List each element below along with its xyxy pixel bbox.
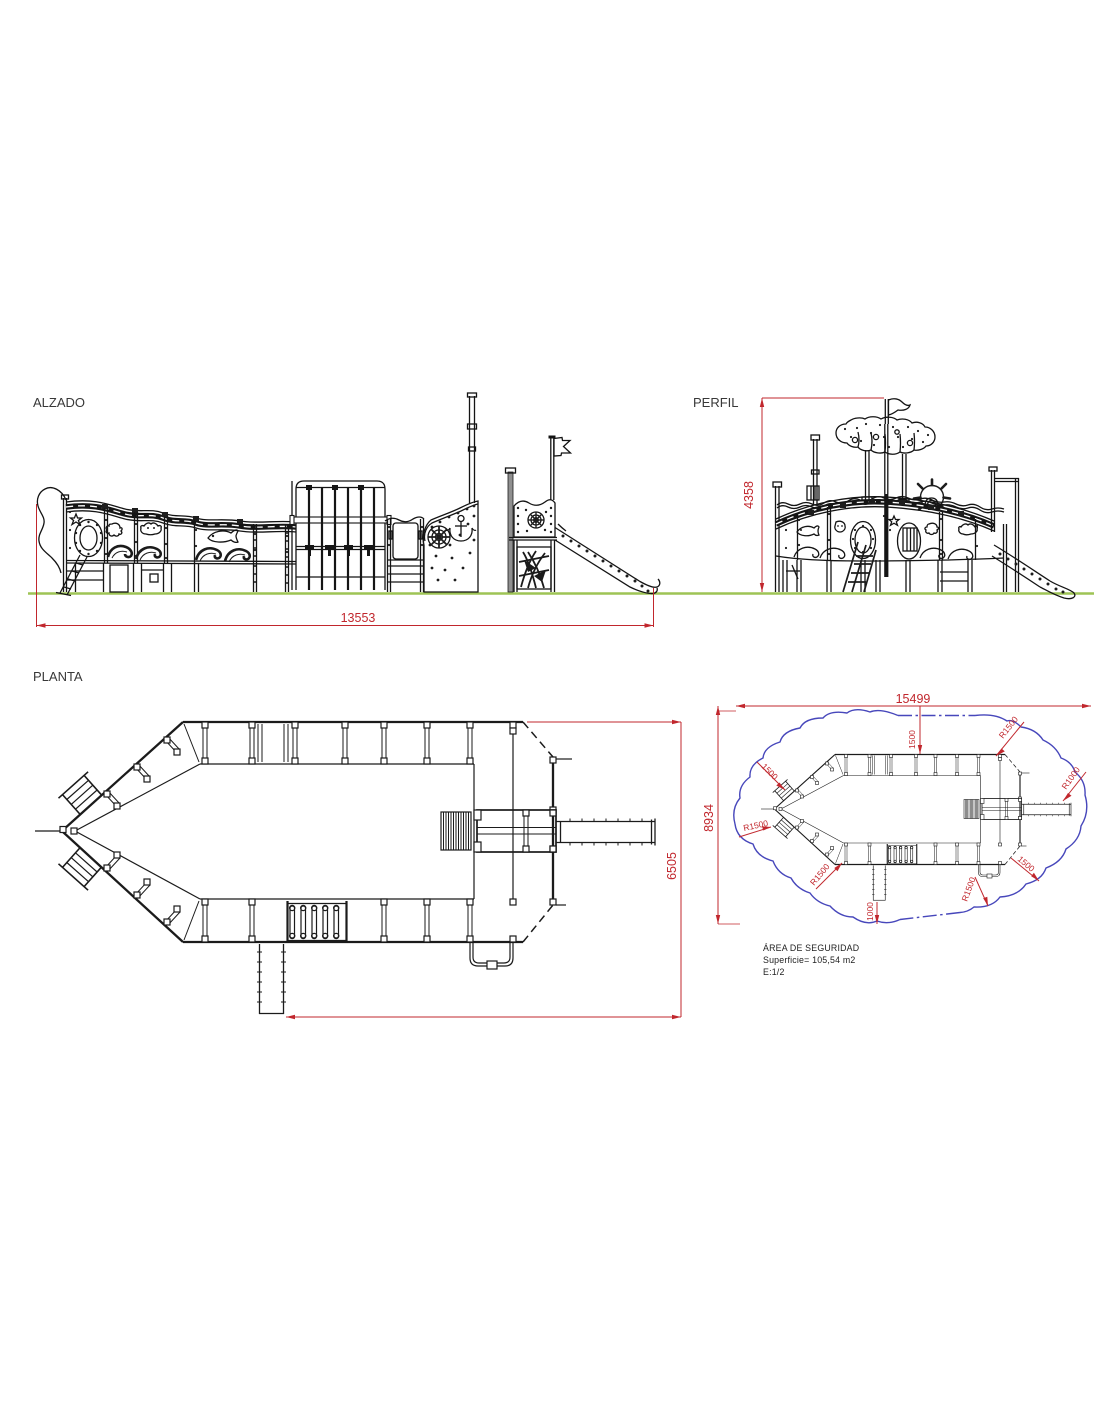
svg-text:ALZADO: ALZADO — [33, 395, 85, 410]
svg-text:Superficie= 105,54 m2: Superficie= 105,54 m2 — [763, 955, 855, 965]
svg-text:PLANTA: PLANTA — [33, 669, 83, 684]
svg-text:ÁREA DE SEGURIDAD: ÁREA DE SEGURIDAD — [763, 943, 859, 953]
svg-text:E:1/2: E:1/2 — [763, 967, 785, 977]
svg-text:1000: 1000 — [865, 902, 875, 921]
svg-text:PERFIL: PERFIL — [693, 395, 739, 410]
svg-text:6505: 6505 — [665, 852, 679, 880]
svg-text:4358: 4358 — [742, 481, 756, 509]
svg-text:1500: 1500 — [907, 730, 917, 749]
svg-text:8934: 8934 — [702, 804, 716, 832]
svg-text:15499: 15499 — [896, 692, 931, 706]
svg-text:13553: 13553 — [341, 611, 376, 625]
